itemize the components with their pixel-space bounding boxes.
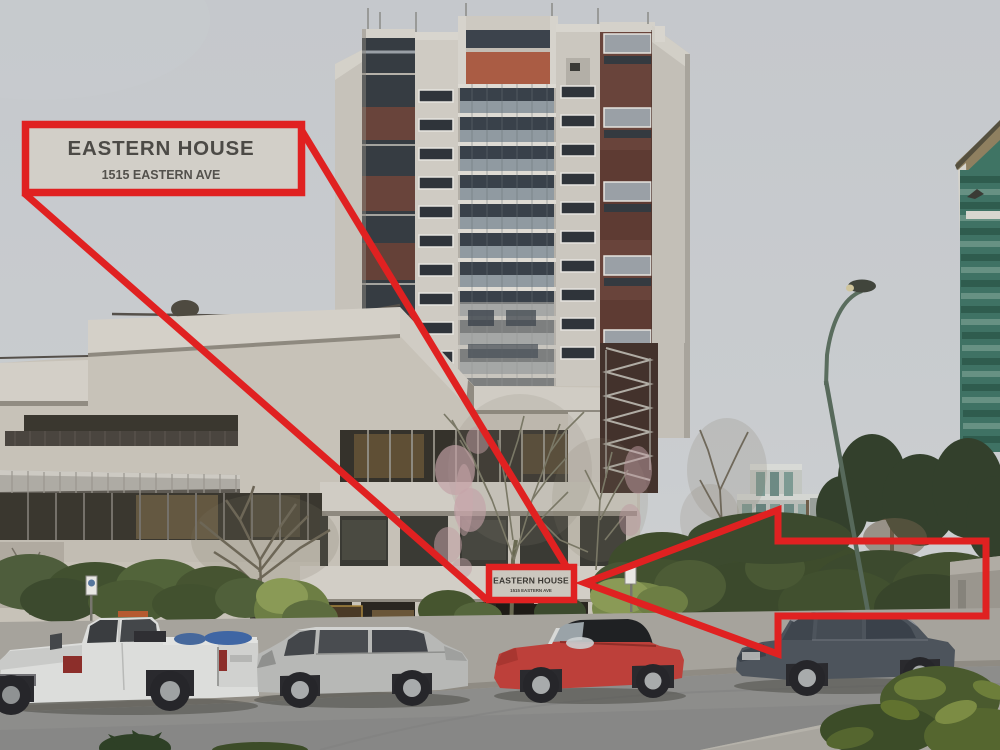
svg-text:EASTERN HOUSE: EASTERN HOUSE	[68, 137, 255, 160]
svg-text:EASTERN HOUSE: EASTERN HOUSE	[493, 576, 569, 586]
svg-text:1515 EASTERN AVE: 1515 EASTERN AVE	[102, 168, 221, 182]
svg-text:1515 EASTERN AVE: 1515 EASTERN AVE	[510, 588, 552, 593]
